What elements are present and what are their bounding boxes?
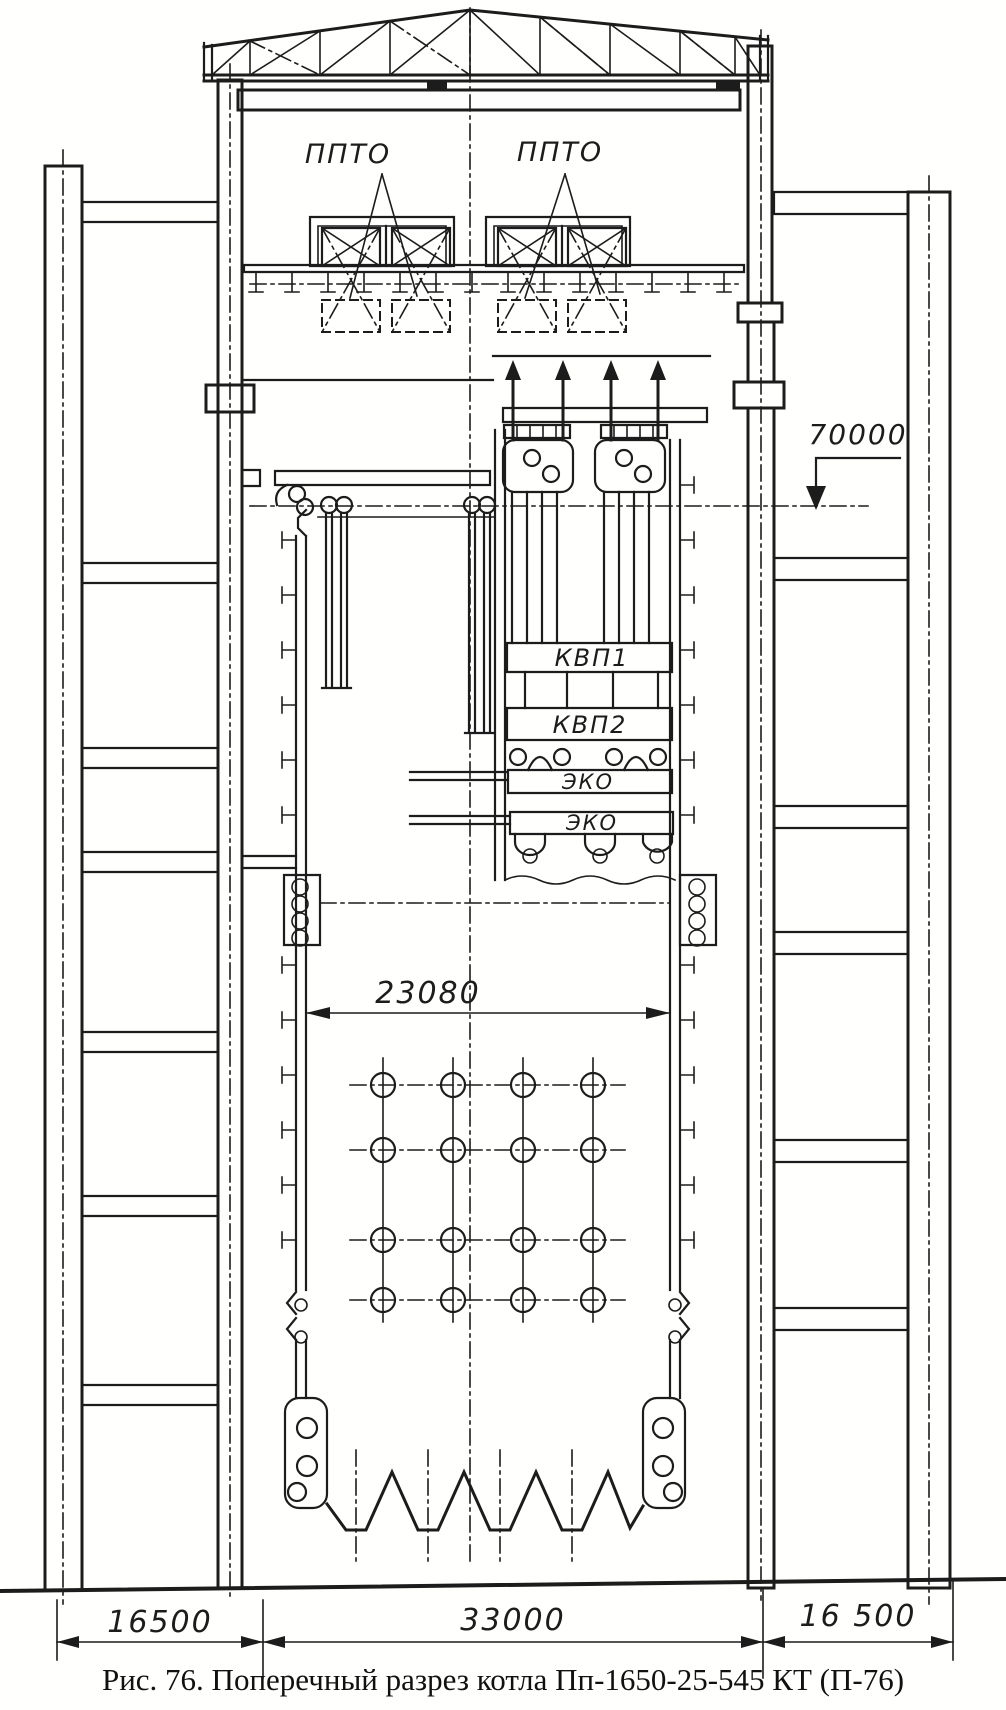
elevation-mark: 70000 (806, 418, 908, 510)
right-boiler-column-upper (748, 46, 772, 303)
span-center-value: 33000 (460, 1603, 565, 1638)
hopper-sawtooth (327, 1472, 643, 1530)
furnace-width-value: 23080 (375, 976, 480, 1011)
crane-beam-pad (716, 81, 740, 91)
ppto-label-right: ППТО (517, 137, 603, 168)
elevation-value: 70000 (808, 418, 907, 451)
furnace (242, 440, 716, 1290)
left-building-frame (45, 64, 254, 1604)
crane-beam-pad (427, 81, 447, 91)
eko-lower-label: ЭКО (565, 811, 618, 835)
span-right-value: 16 500 (800, 1599, 917, 1634)
furnace-width-dimension: 23080 (306, 976, 670, 1019)
drawing-sheet: ППТО ППТО (0, 0, 1006, 1710)
eko-upper-label: ЭКО (561, 770, 614, 794)
right-column-cap (738, 303, 782, 322)
hopper (285, 1292, 689, 1566)
break-line (505, 876, 675, 884)
burner-grid (350, 1058, 625, 1322)
span-left-value: 16500 (107, 1605, 212, 1640)
convective-shaft: КВП1 КВП2 ЭКО ЭКО (320, 430, 675, 903)
kvp1-label: КВП1 (555, 644, 630, 672)
right-wall-stubs (680, 477, 694, 1248)
roof-truss (204, 10, 768, 81)
kvp2-label: КВП2 (553, 711, 628, 739)
furnace-right-wall (670, 440, 680, 1290)
boiler-cross-section-drawing: ППТО ППТО (0, 0, 1006, 1710)
figure-caption: Рис. 76. Поперечный разрез котла Пп-1650… (0, 1662, 1006, 1698)
left-buckstay-block (284, 875, 320, 945)
furnace-left-wall (296, 510, 306, 1290)
ppto-label-left: ППТО (305, 139, 391, 170)
right-column-bracket (734, 382, 784, 408)
crane-beam (238, 81, 740, 110)
right-buckstay-block (680, 875, 716, 945)
ceiling-platform (244, 265, 744, 292)
right-building-frame (734, 30, 950, 1604)
ground-line (0, 1579, 1006, 1591)
hanger-ibeams (249, 272, 731, 292)
ppto-packages: ППТО ППТО (305, 137, 630, 332)
